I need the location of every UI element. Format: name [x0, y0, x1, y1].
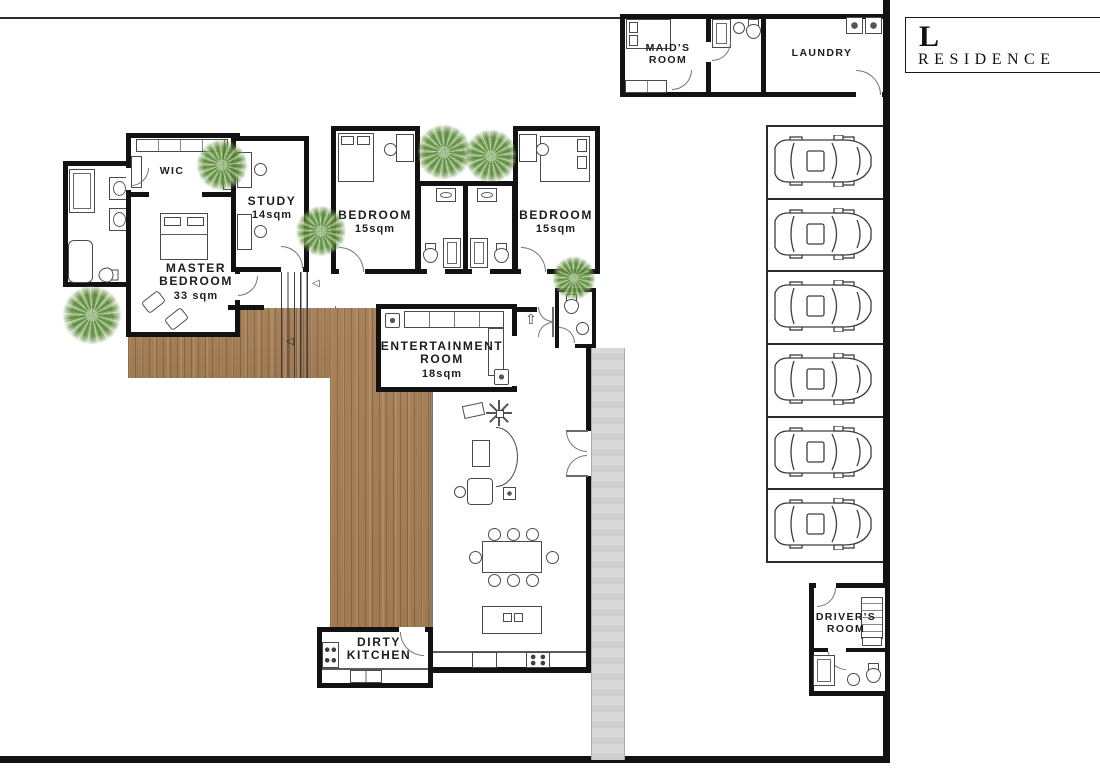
- pillow-icon: [629, 22, 638, 33]
- floor-plan: WIC MASTER BEDROOM 33 sqm STUDY 14sqm BE…: [0, 0, 1100, 778]
- closet-icon: [625, 80, 667, 93]
- entry-door-leaf: [552, 307, 554, 337]
- pillow-icon: [357, 136, 370, 145]
- chair-icon: [384, 143, 397, 156]
- driver-bath-wall: [846, 648, 886, 652]
- plant-icon: [60, 286, 124, 344]
- pillow-icon: [629, 35, 638, 46]
- garage-stall-line: [766, 561, 883, 563]
- garage-stall-line: [766, 270, 883, 272]
- chair-icon: [536, 143, 549, 156]
- dirty-kitchen-label: DIRTY KITCHEN: [347, 636, 412, 663]
- chair-icon: [254, 225, 267, 238]
- master-bedroom-area: 33 sqm: [174, 290, 219, 302]
- shower-icon: [443, 238, 461, 268]
- sliding-door-track: [335, 306, 378, 309]
- sink-icon: [733, 22, 745, 34]
- dining-chair-icon: [546, 551, 559, 564]
- counter-module-icon: [472, 652, 497, 668]
- car-icon: [772, 280, 878, 332]
- toilet-icon: [866, 663, 881, 683]
- garage-stall-line: [766, 343, 883, 345]
- entertainment-label: ENTERTAINMENT ROOM 18sqm: [381, 340, 504, 380]
- pillow-icon: [341, 136, 354, 145]
- island-sink-icon: [514, 613, 523, 622]
- bath-laundry-wall: [761, 14, 766, 97]
- washer-icon: [846, 17, 863, 34]
- sliding-door-track: [430, 392, 433, 627]
- tv-icon: [462, 402, 485, 419]
- sink-icon: [576, 322, 589, 335]
- dining-chair-icon: [507, 528, 520, 541]
- study-area: 14sqm: [252, 209, 292, 221]
- dining-chair-icon: [526, 528, 539, 541]
- car-icon: [772, 135, 878, 187]
- armchair-icon: [467, 478, 493, 505]
- patio-door-leaf: [566, 475, 588, 477]
- desk-icon: [396, 134, 414, 162]
- patio-door-leaf: [566, 430, 588, 432]
- step-arrow-icon: ◁: [312, 279, 320, 289]
- pillow-icon: [164, 217, 181, 226]
- coffee-table-icon: [472, 440, 490, 467]
- garage-stall-line: [766, 488, 883, 490]
- toilet-icon: [423, 243, 438, 263]
- cooktop-icon: [526, 652, 550, 668]
- boundary-top-line: [0, 17, 622, 19]
- garage-stall-line: [766, 416, 883, 418]
- dining-chair-icon: [488, 574, 501, 587]
- car-icon: [772, 208, 878, 260]
- sink-icon: [436, 188, 456, 202]
- plant-icon: [466, 126, 516, 186]
- bedroom-right-area: 15sqm: [536, 223, 576, 235]
- kitchen-counter-line: [432, 651, 586, 653]
- bathtub-icon: [68, 240, 93, 283]
- shower-icon: [470, 238, 488, 268]
- dining-chair-icon: [469, 551, 482, 564]
- island-sink-icon: [503, 613, 512, 622]
- bath-divider-wall: [463, 185, 468, 270]
- stove-icon: [322, 642, 339, 668]
- door-arc: [238, 276, 258, 296]
- dryer-icon: [865, 17, 882, 34]
- pillow-icon: [187, 217, 204, 226]
- pillow-icon: [577, 156, 587, 169]
- dining-chair-icon: [507, 574, 520, 587]
- logo-letter: L: [919, 20, 939, 54]
- garage-stall-line: [766, 198, 883, 200]
- bedroom-right-label: BEDROOM 15sqm: [519, 209, 593, 236]
- concrete-walkway: [591, 348, 625, 760]
- side-table-icon: [454, 486, 466, 498]
- car-icon: [772, 498, 878, 550]
- wic-divider-wall: [131, 192, 149, 197]
- toilet-icon: [494, 243, 509, 263]
- maids-room-label: MAID'S ROOM: [646, 43, 691, 67]
- blanket-line: [161, 234, 207, 235]
- wic-label: WIC: [160, 166, 185, 178]
- master-bedroom-label: MASTER BEDROOM 33 sqm: [159, 262, 233, 302]
- maid-bath-wall: [706, 14, 711, 42]
- dining-table-icon: [482, 541, 542, 573]
- shower-icon: [69, 169, 95, 213]
- sink-icon: [477, 188, 497, 202]
- logo-box: L RESIDENCE: [905, 17, 1100, 73]
- entry-door-arc: [538, 307, 553, 322]
- curved-sofa-icon: [496, 427, 518, 487]
- sofa-icon: [404, 311, 504, 328]
- step-arrow-icon: ◁: [286, 337, 294, 347]
- pillow-icon: [577, 139, 587, 152]
- plant-icon: [296, 204, 346, 258]
- chair-icon: [254, 163, 267, 176]
- entry-door-arc: [538, 322, 553, 337]
- kitchen-island-icon: [482, 606, 542, 634]
- garage-stall-line: [766, 125, 883, 127]
- toilet-icon: [746, 19, 761, 39]
- logo-name: RESIDENCE: [918, 51, 1056, 69]
- maid-bath-wall: [706, 62, 711, 97]
- double-sink-icon: [350, 670, 382, 683]
- entertainment-area: 18sqm: [422, 368, 462, 380]
- plant-icon: [551, 256, 597, 300]
- plant-icon: [196, 138, 248, 192]
- bedroom-left-area: 15sqm: [355, 223, 395, 235]
- sink-icon: [847, 673, 860, 686]
- shower-icon: [813, 655, 835, 686]
- dining-chair-icon: [488, 528, 501, 541]
- bench-icon: [862, 637, 882, 646]
- boundary-bottom-wall: [0, 756, 890, 763]
- entry-arrow-icon: ⇧: [525, 312, 537, 326]
- toilet-icon: [99, 268, 119, 283]
- car-icon: [772, 426, 878, 478]
- patio-door-arc: [566, 431, 587, 452]
- car-icon: [772, 353, 878, 405]
- desk-icon: [519, 134, 537, 162]
- corridor-deck-wall: [228, 305, 264, 310]
- drivers-room-label: DRIVER'S ROOM: [816, 612, 876, 636]
- driver-bath-wall: [813, 648, 828, 652]
- plant-icon: [418, 121, 470, 183]
- patio-door-arc: [566, 455, 587, 476]
- living-bottom-wall: [428, 667, 592, 673]
- bedroom-left-label: BEDROOM 15sqm: [338, 209, 412, 236]
- corridor-steps: [281, 272, 308, 378]
- speaker-icon: [385, 313, 400, 328]
- ceiling-fan-icon: [486, 400, 512, 426]
- end-table-icon: [503, 487, 516, 500]
- laundry-label: LAUNDRY: [792, 48, 853, 60]
- dining-chair-icon: [526, 574, 539, 587]
- study-label: STUDY 14sqm: [248, 195, 297, 222]
